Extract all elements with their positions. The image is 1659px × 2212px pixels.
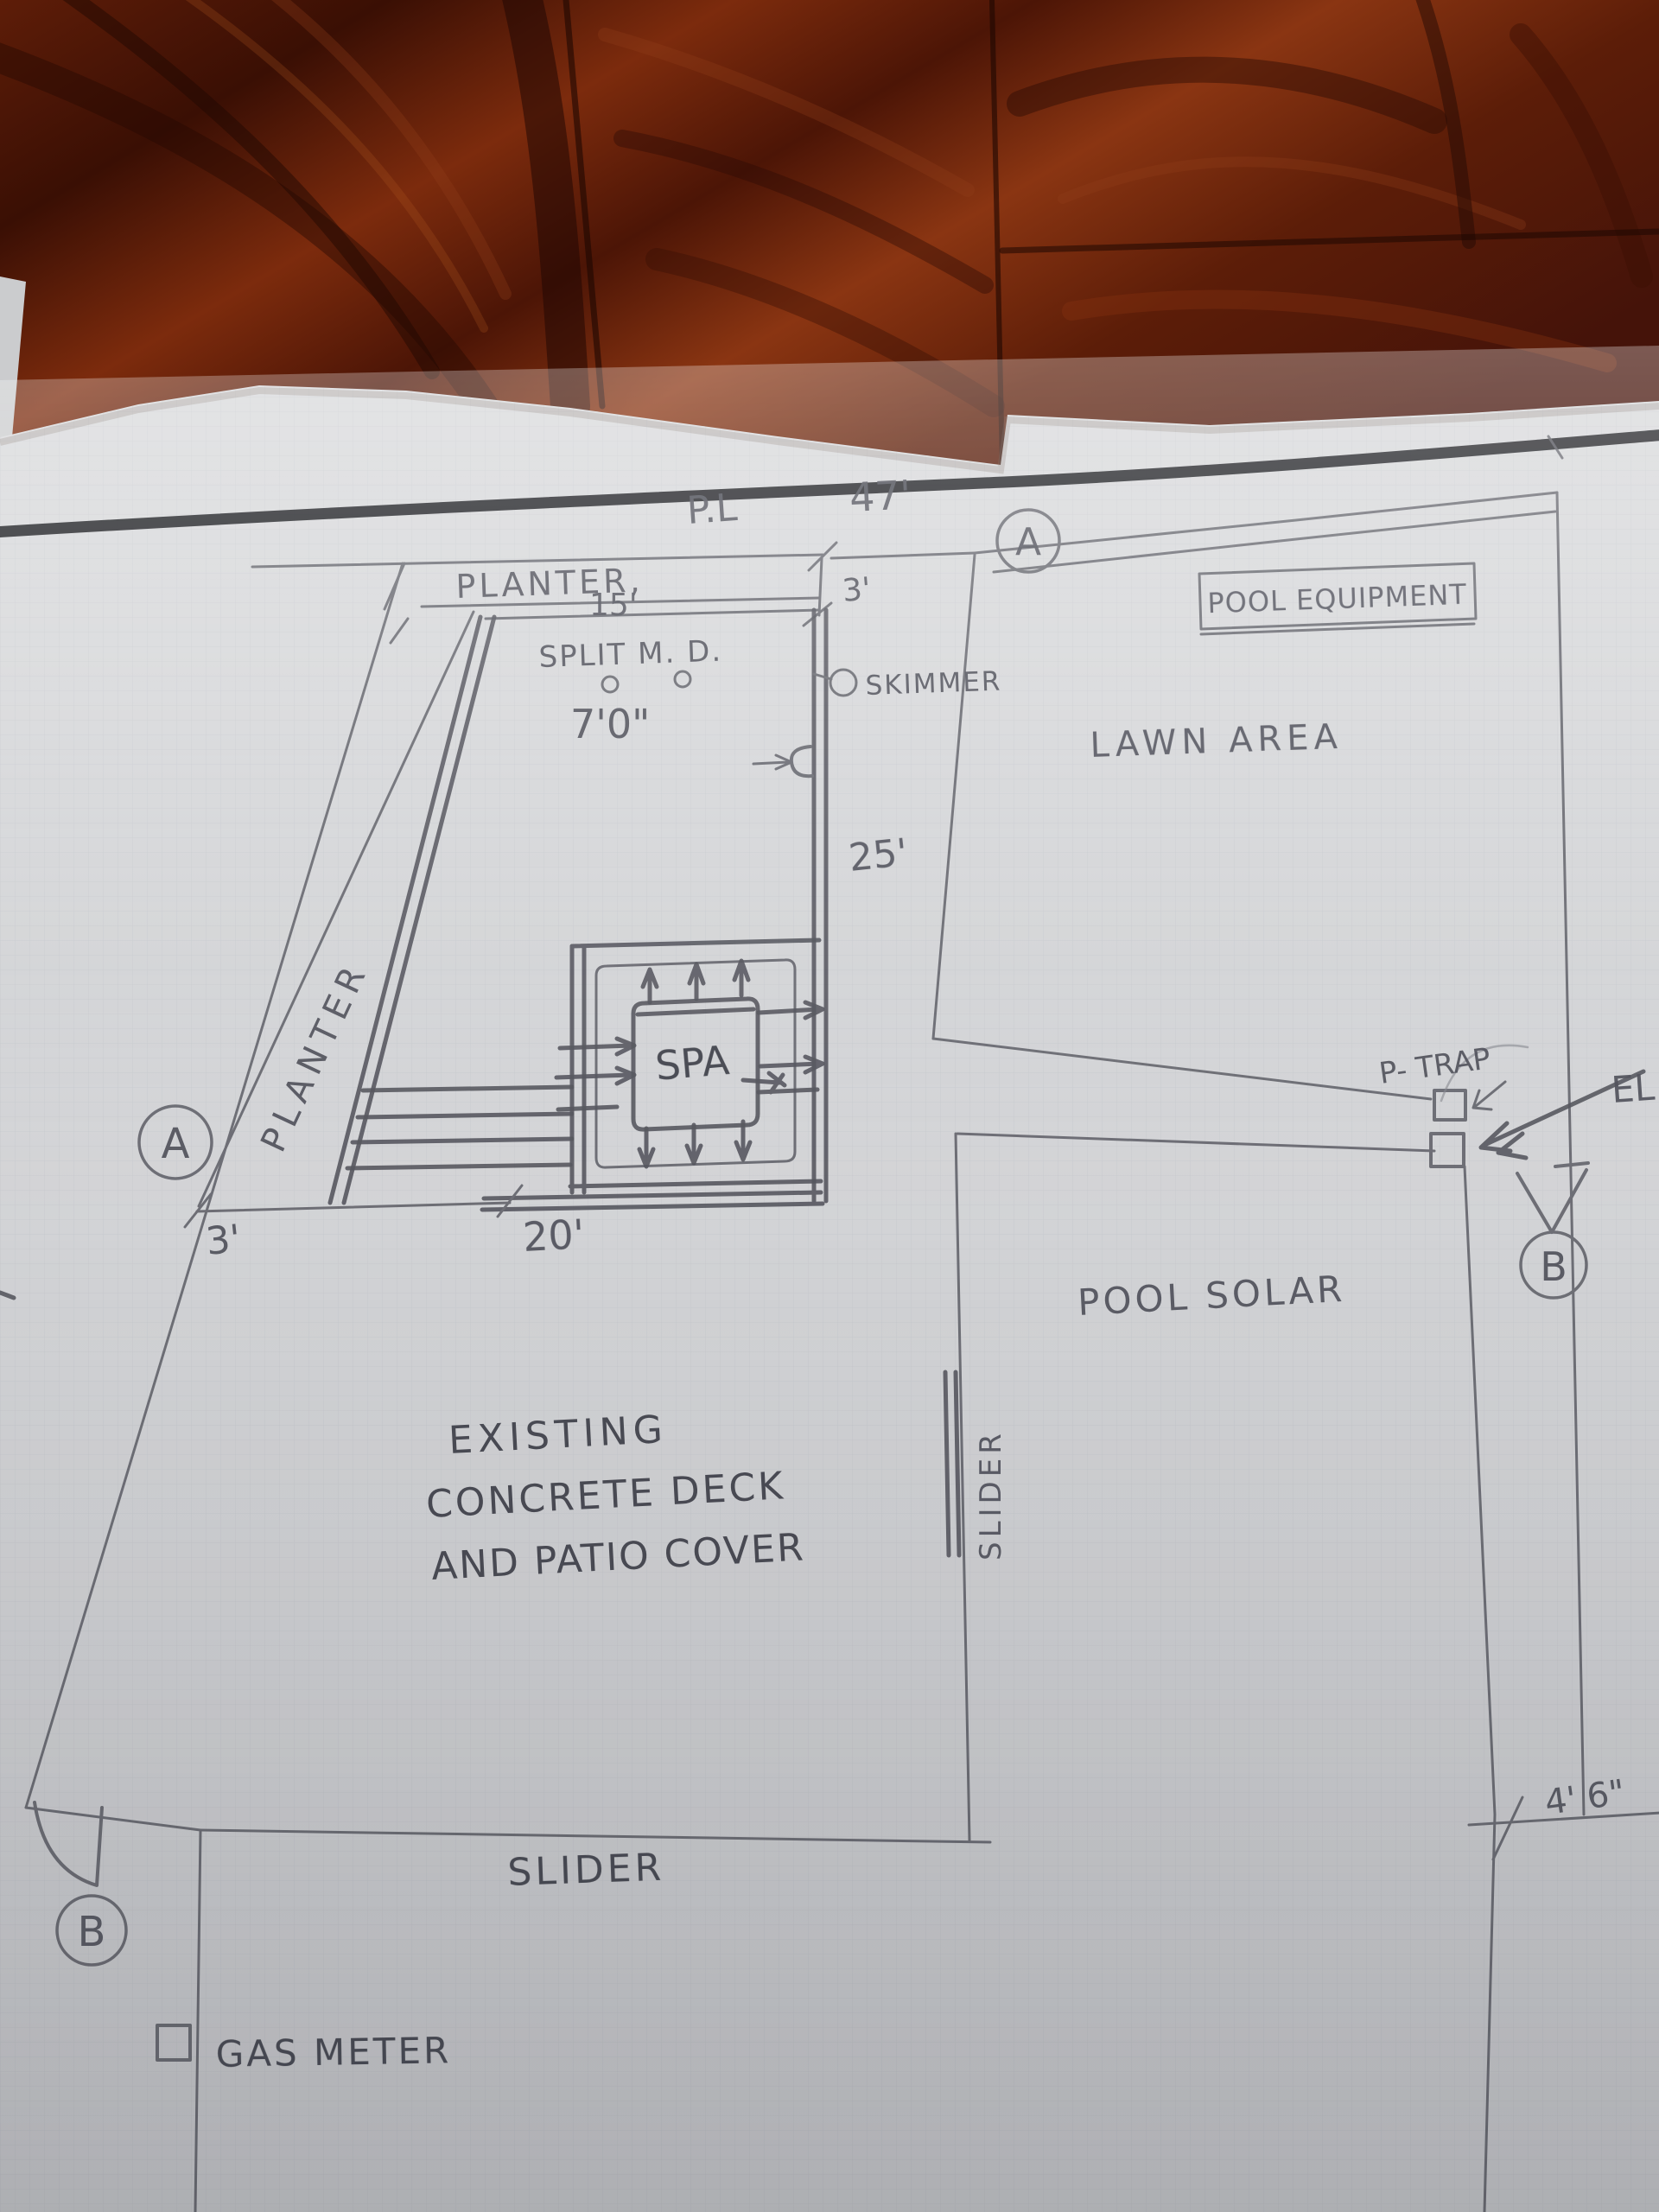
lighting-overlay <box>0 346 1659 2212</box>
photo-of-hand-drawn-pool-plan: P.L 47' A PLANTER, 15' 3' SPLIT M. D. 7'… <box>0 0 1659 2212</box>
